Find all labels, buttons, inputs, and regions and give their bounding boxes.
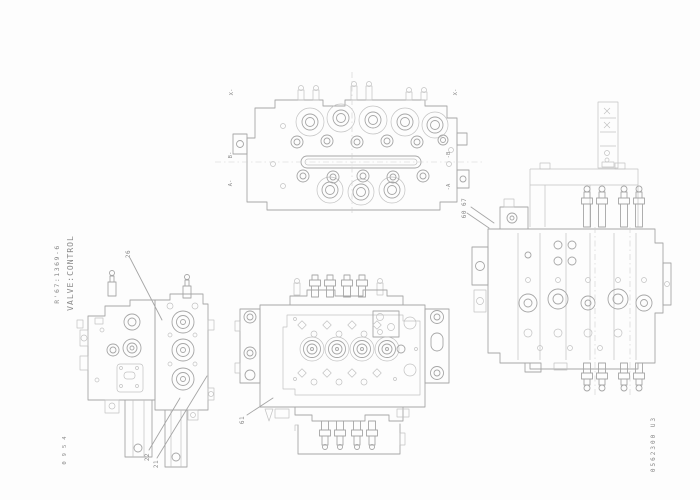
drawing-sheet: R'67:1369-6 VALVE:CONTROL 0954 0562300 U…	[0, 0, 700, 500]
left-bracket-lower	[474, 199, 514, 312]
small-holes	[524, 278, 647, 351]
callout-21: 21	[153, 460, 160, 468]
section-marker-a-left: A-	[228, 180, 234, 187]
section-marker-x-right: X-	[453, 89, 459, 96]
detail-strip	[598, 102, 618, 168]
pilot-box-holes	[377, 314, 395, 335]
left-bracket	[472, 207, 528, 285]
left-section-ports	[107, 314, 141, 357]
bottom-fittings	[320, 421, 378, 450]
callout-22: 22	[144, 453, 151, 461]
mounting-plate-tab	[400, 433, 405, 445]
top-fittings	[310, 275, 368, 297]
callout-26: 26	[125, 250, 132, 258]
top-plate	[290, 290, 403, 305]
left-flange-holes	[244, 311, 256, 380]
bottom-plate	[295, 407, 403, 421]
mounting-plate-outline	[298, 424, 400, 454]
foot-left	[525, 363, 541, 372]
section-marker-b-right: -B	[446, 151, 452, 158]
bottom-relief-valves	[582, 363, 645, 391]
left-side-tabs	[77, 320, 88, 370]
section-marker-x-left: X-	[229, 89, 235, 96]
right-view-drawing	[472, 163, 671, 397]
diagram-canvas: R'67:1369-6 VALVE:CONTROL 0954 0562300 U…	[0, 0, 700, 500]
section-marker-b-left: B-	[228, 152, 234, 159]
port-circles	[291, 110, 448, 200]
top-view-drawing	[215, 72, 485, 216]
top-bolts	[298, 82, 427, 101]
doc-number: 0562300 U3	[650, 416, 657, 472]
port-circles	[304, 341, 406, 358]
callout-60-67: 60 67	[461, 198, 468, 219]
left-flange-tabs	[235, 321, 240, 373]
top-relief-valves	[582, 186, 645, 227]
right-tab-hole	[665, 282, 670, 287]
port-circles	[519, 241, 652, 312]
right-flange-holes	[431, 311, 444, 380]
left-section-outline	[88, 300, 155, 400]
right-section-ports	[172, 311, 194, 390]
section-marker-a-right: -A	[446, 183, 452, 190]
side-view-drawing	[77, 271, 214, 468]
drawing-part-number: R'67:1369-6	[53, 244, 61, 304]
drawing-title: VALVE:CONTROL	[66, 235, 75, 311]
front-view-drawing	[235, 275, 449, 454]
scallop-bosses	[296, 104, 448, 205]
mounting-plate-notch	[295, 425, 298, 431]
corner-code: 0954	[62, 431, 68, 464]
callout-61: 61	[239, 416, 246, 424]
section-lines	[518, 233, 636, 360]
